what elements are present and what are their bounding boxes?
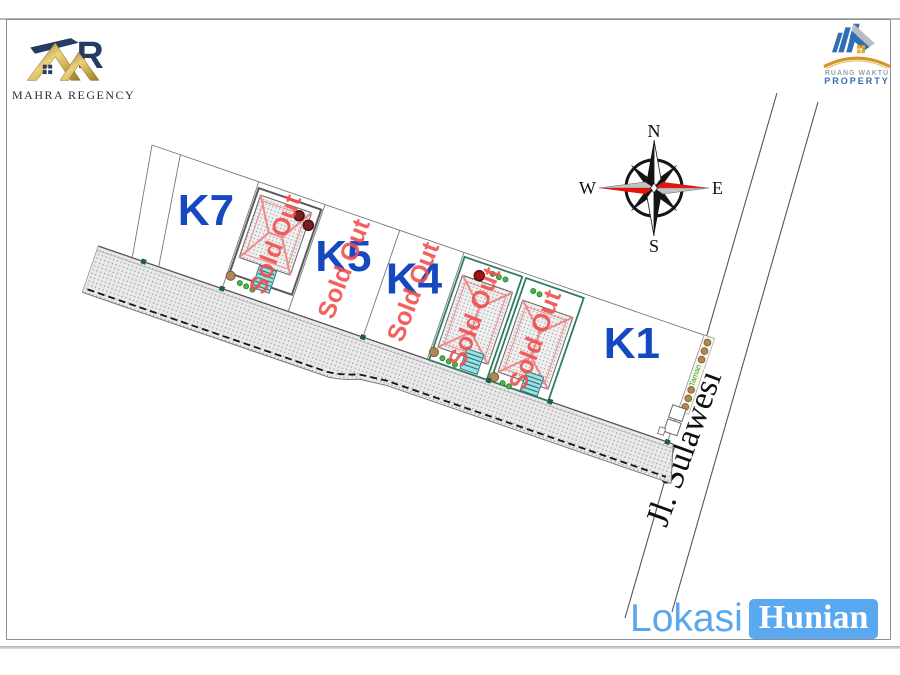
plot-label-k1: K1: [604, 319, 660, 368]
lokasi-text: Lokasi: [630, 597, 743, 641]
flyer-page: R MAHRA REGENCY RUANG WAKTU P: [0, 0, 900, 675]
compass-label-e: E: [712, 178, 723, 198]
hunian-badge: Hunian: [749, 599, 879, 640]
compass-label-s: S: [649, 236, 659, 256]
compass-label-n: N: [648, 121, 661, 141]
compass-label-w: W: [579, 178, 596, 198]
site-plan: Jl. Sulawesi: [0, 0, 900, 675]
compass-north-point: [647, 140, 661, 188]
plot-label-k7: K7: [178, 186, 234, 235]
location-caption: Lokasi Hunian: [630, 597, 878, 641]
compass-rose: N S W E: [579, 121, 723, 256]
compass-south-point: [647, 188, 661, 236]
